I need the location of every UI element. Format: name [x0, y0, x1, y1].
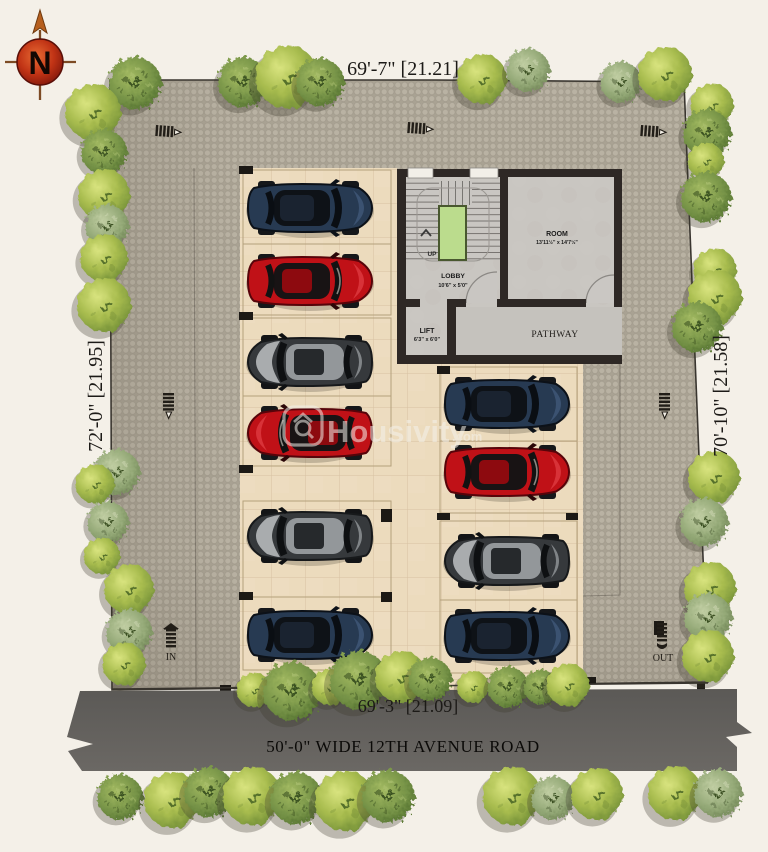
svg-text:PATHWAY: PATHWAY: [531, 330, 578, 340]
svg-text:13'11½" x 14'7½": 13'11½" x 14'7½": [536, 239, 578, 246]
svg-text:69'-3" [21.09]: 69'-3" [21.09]: [358, 696, 459, 716]
svg-text:IN: IN: [166, 652, 177, 663]
svg-text:50'-0" WIDE 12TH AVENUE ROAD: 50'-0" WIDE 12TH AVENUE ROAD: [266, 737, 540, 756]
svg-text:70'-10" [21.58]: 70'-10" [21.58]: [710, 335, 732, 457]
svg-text:72'-0" [21.95]: 72'-0" [21.95]: [85, 340, 107, 452]
svg-text:Housivity: Housivity: [327, 414, 467, 449]
svg-text:OUT: OUT: [653, 653, 674, 664]
svg-text:UP: UP: [427, 251, 437, 258]
svg-text:6'3" x 6'0": 6'3" x 6'0": [414, 337, 441, 343]
svg-text:10'6" x 5'0": 10'6" x 5'0": [438, 283, 468, 289]
svg-text:69'-7" [21.21]: 69'-7" [21.21]: [347, 58, 459, 80]
svg-text:.com: .com: [452, 429, 482, 444]
svg-text:LIFT: LIFT: [420, 328, 435, 335]
svg-text:N: N: [28, 45, 51, 81]
svg-text:ROOM: ROOM: [546, 231, 568, 238]
svg-text:LOBBY: LOBBY: [441, 273, 465, 280]
